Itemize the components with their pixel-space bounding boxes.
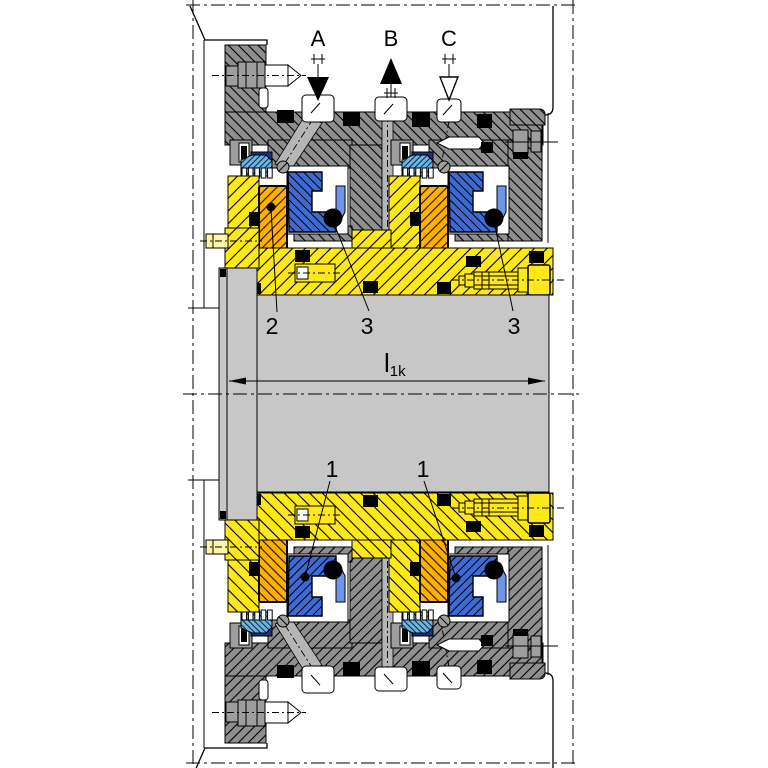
callout-3-right: 3: [508, 313, 521, 339]
callout-1-left: 1: [326, 456, 339, 482]
collar-notch-bottom: [220, 511, 226, 519]
callout-3-left: 3: [361, 313, 374, 339]
drawing-canvas: l1k 2 3 3 1 1 A B C: [0, 0, 768, 768]
seal-section-drawing: l1k 2 3 3 1 1 A B C: [0, 0, 768, 768]
flow-arrow-b-filled-up: [380, 58, 402, 98]
leader-dot-1-right: [452, 574, 461, 583]
port-label-a: A: [311, 26, 326, 51]
collar-notch-top: [220, 269, 226, 277]
callout-2: 2: [266, 313, 279, 339]
flow-arrow-c-outline-down: [440, 54, 458, 100]
leader-dot-1-left: [301, 573, 310, 582]
port-label-b: B: [384, 26, 399, 51]
lower-half-mirrored: [188, 480, 566, 768]
callout-1-right: 1: [417, 456, 430, 482]
connection-annotations: A B C: [307, 26, 458, 101]
upper-half: [188, 6, 566, 308]
flow-arrow-a-filled-down: [307, 54, 329, 101]
port-label-c: C: [441, 26, 457, 51]
